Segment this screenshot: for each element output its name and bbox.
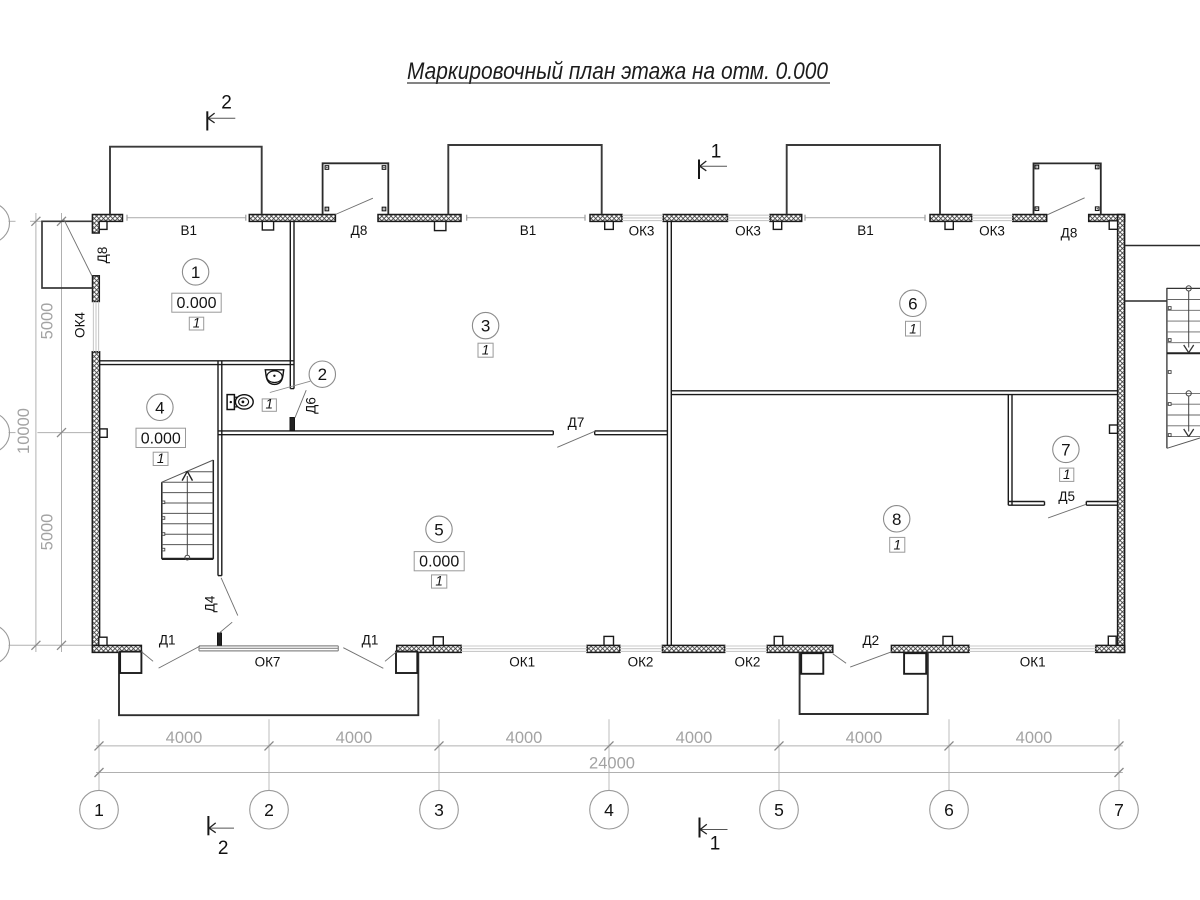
svg-text:Д2: Д2	[862, 633, 879, 648]
svg-text:6: 6	[908, 294, 917, 313]
svg-text:4000: 4000	[336, 729, 373, 747]
svg-text:1: 1	[893, 538, 901, 553]
svg-text:3: 3	[434, 800, 444, 820]
svg-text:Д7: Д7	[568, 415, 585, 430]
svg-text:3: 3	[481, 317, 490, 336]
svg-text:24000: 24000	[589, 755, 635, 773]
svg-text:ОК3: ОК3	[629, 224, 655, 239]
svg-text:4000: 4000	[676, 729, 713, 747]
svg-text:5000: 5000	[39, 514, 57, 551]
svg-text:1: 1	[482, 343, 490, 358]
svg-text:5: 5	[434, 520, 443, 539]
svg-text:1: 1	[94, 800, 104, 820]
svg-text:1: 1	[266, 397, 274, 412]
svg-text:0.000: 0.000	[141, 430, 181, 447]
svg-text:ОК7: ОК7	[255, 655, 281, 670]
svg-text:Д1: Д1	[362, 633, 379, 648]
svg-text:7: 7	[1061, 440, 1070, 459]
svg-text:Д1: Д1	[159, 633, 176, 648]
svg-text:1: 1	[909, 321, 917, 336]
svg-text:ОК1: ОК1	[509, 655, 535, 670]
svg-text:6: 6	[944, 800, 954, 820]
svg-text:4000: 4000	[1016, 729, 1053, 747]
svg-text:Д5: Д5	[1058, 489, 1075, 504]
svg-text:2: 2	[221, 93, 232, 114]
svg-text:1: 1	[157, 451, 165, 466]
svg-text:1: 1	[711, 142, 722, 163]
svg-text:ОК4: ОК4	[73, 312, 88, 338]
svg-text:1: 1	[1063, 467, 1071, 482]
svg-text:В1: В1	[520, 223, 537, 238]
svg-text:ОК3: ОК3	[979, 224, 1005, 239]
svg-text:4000: 4000	[846, 729, 883, 747]
svg-text:4000: 4000	[166, 729, 203, 747]
svg-text:7: 7	[1114, 800, 1124, 820]
svg-text:ОК2: ОК2	[734, 655, 760, 670]
svg-text:Д8: Д8	[1061, 226, 1078, 241]
svg-text:8: 8	[892, 510, 901, 529]
svg-text:1: 1	[191, 263, 200, 282]
svg-text:0.000: 0.000	[176, 295, 216, 312]
svg-text:Маркировочный план этажа на от: Маркировочный план этажа на отм. 0.000	[407, 58, 829, 85]
svg-text:5: 5	[774, 800, 784, 820]
svg-text:2: 2	[318, 365, 327, 384]
svg-text:4: 4	[155, 398, 164, 417]
svg-text:4000: 4000	[506, 729, 543, 747]
svg-text:Д6: Д6	[304, 397, 319, 414]
svg-text:0.000: 0.000	[419, 554, 459, 571]
svg-text:ОК2: ОК2	[628, 655, 654, 670]
svg-text:1: 1	[193, 315, 201, 330]
svg-text:10000: 10000	[15, 408, 33, 454]
svg-text:5000: 5000	[39, 303, 57, 340]
svg-text:ОК1: ОК1	[1020, 655, 1046, 670]
svg-text:Д8: Д8	[351, 223, 368, 238]
svg-text:2: 2	[218, 838, 229, 859]
svg-text:В1: В1	[857, 223, 874, 238]
svg-text:ОК3: ОК3	[735, 224, 761, 239]
svg-text:В1: В1	[181, 223, 198, 238]
svg-text:4: 4	[604, 800, 614, 820]
svg-text:Д8: Д8	[95, 247, 110, 264]
svg-text:2: 2	[264, 800, 274, 820]
svg-text:1: 1	[435, 574, 443, 589]
svg-text:1: 1	[710, 834, 721, 855]
svg-text:Д4: Д4	[203, 595, 218, 612]
